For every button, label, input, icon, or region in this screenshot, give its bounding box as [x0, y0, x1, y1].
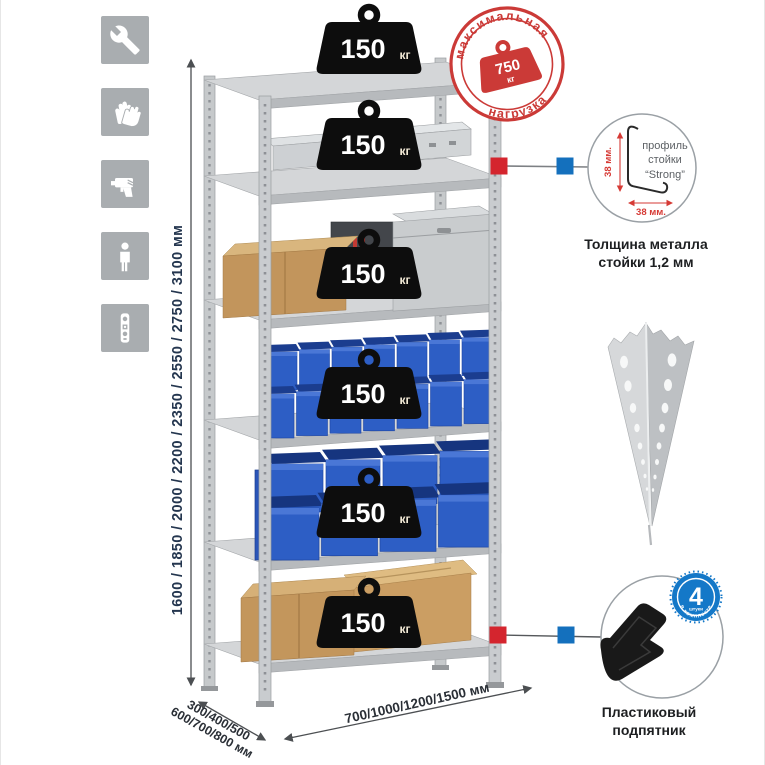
product-diagram: 150 кг 150 кг 150 кг 150 кг: [0, 0, 765, 765]
callout-blue-square-bottom: [558, 627, 575, 644]
load-value: 150: [340, 259, 385, 289]
callout-top: [491, 158, 590, 175]
profile-dim-horizontal: 38 мм.: [636, 207, 666, 218]
load-value: 150: [340, 379, 385, 409]
load-unit: кг: [399, 622, 410, 636]
load-unit: кг: [399, 144, 410, 158]
weight-badge-1: 150 кг: [317, 7, 422, 74]
profile-dim-vertical: 38 мм.: [603, 147, 614, 177]
profile-text-3: “Strong”: [645, 169, 685, 181]
load-unit: кг: [399, 273, 410, 287]
load-unit: кг: [399, 48, 410, 62]
foot-caption-line-2: подпятник: [602, 722, 697, 740]
profile-text-1: профиль: [642, 140, 688, 152]
load-value: 150: [340, 130, 385, 160]
shelving-illustration: 150 кг 150 кг 150 кг 150 кг: [1, 0, 765, 765]
callout-red-square-bottom: [490, 627, 507, 644]
load-unit: кг: [399, 512, 410, 526]
max-load-stamp: максимальная нагрузка 750 кг: [439, 0, 575, 133]
profile-caption-line-1: Толщина металла: [584, 236, 708, 254]
callout-bottom: [490, 627, 602, 644]
weight-badge-2: 150 кг: [317, 103, 422, 170]
profile-caption: Толщина металла стойки 1,2 мм: [584, 236, 708, 271]
foot-caption-line-1: Пластиковый: [602, 704, 697, 722]
load-value: 150: [340, 608, 385, 638]
height-dimension-label: 1600 / 1850 / 2000 / 2200 / 2350 / 2550 …: [170, 225, 186, 616]
load-unit: кг: [399, 393, 410, 407]
badge-sub: штуки: [689, 607, 703, 612]
callout-red-square-top: [491, 158, 508, 175]
load-value: 150: [340, 498, 385, 528]
profile-detail-circle: 38 мм. 38 мм. профиль стойки “Strong”: [588, 114, 696, 222]
angle-post-image: [608, 323, 694, 545]
foot-caption: Пластиковый подпятник: [602, 704, 697, 739]
plastic-foot-circle: 4 штуки в комплекте: [600, 572, 723, 699]
callout-blue-square-top: [557, 158, 574, 175]
profile-text-2: стойки: [648, 154, 682, 166]
profile-caption-line-2: стойки 1,2 мм: [584, 254, 708, 272]
load-value: 150: [340, 34, 385, 64]
